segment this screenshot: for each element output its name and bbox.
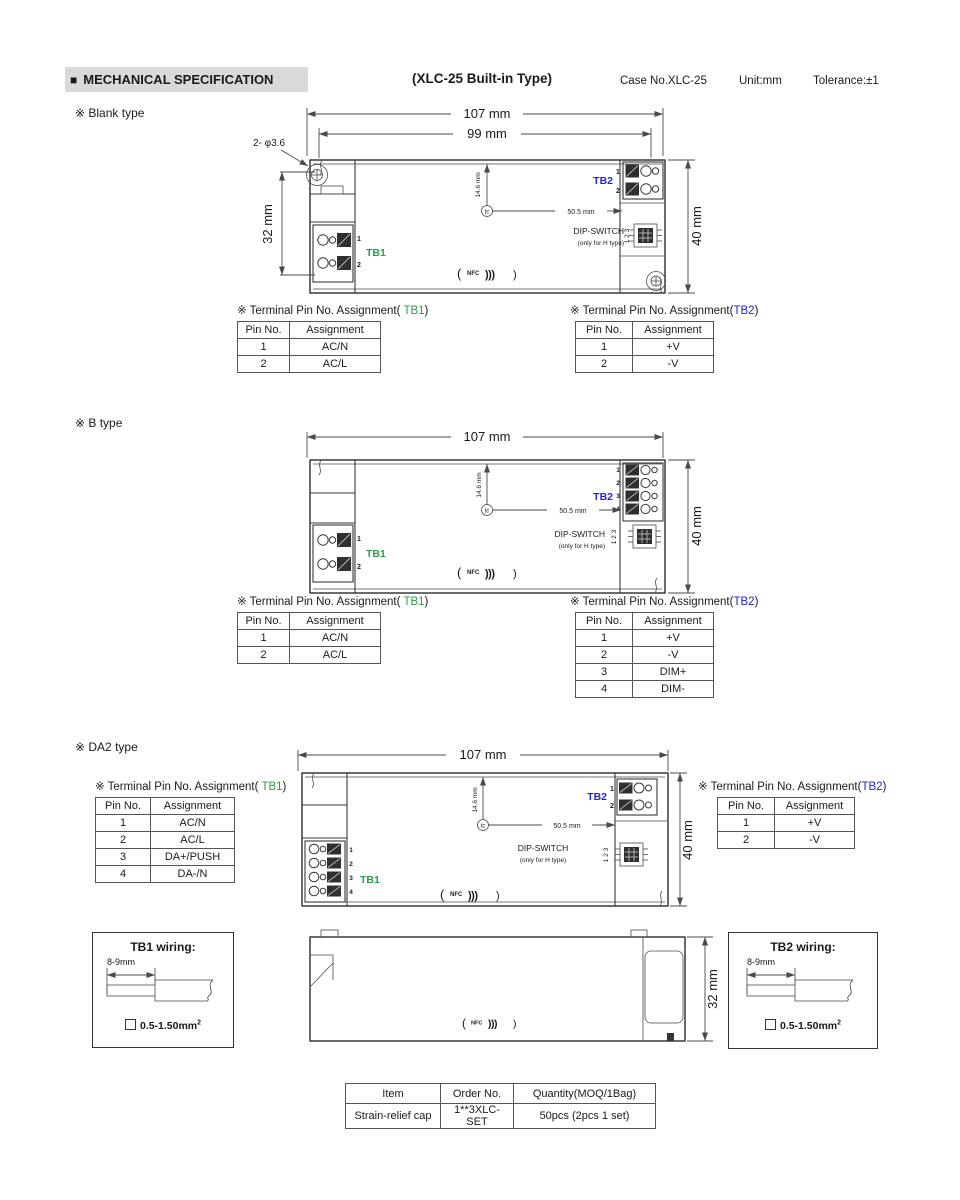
dimension-99: 99 mm — [319, 126, 651, 158]
page-title: MECHANICAL SPECIFICATION — [83, 72, 273, 87]
tb2-pin1-label: 1 — [610, 786, 614, 793]
table-row: Pin No.Assignment — [96, 798, 235, 815]
dimension-107: 107 mm — [307, 429, 663, 458]
table-cell: 4 — [576, 681, 633, 698]
tb2-pin2-label: 2 — [616, 188, 620, 195]
dim-32-label: 32 mm — [705, 969, 720, 1009]
nfc-text: NFC — [471, 1021, 482, 1027]
table-cell: 1 — [576, 339, 633, 356]
strain-relief-order-table: ItemOrder No.Quantity(MOQ/1Bag) Strain-r… — [345, 1083, 656, 1129]
dim-32-label: 32 mm — [260, 204, 275, 244]
dimension-107: 107 mm — [298, 747, 668, 771]
mounting-ear-bottom-right — [647, 272, 666, 294]
model-subtitle: (XLC-25 Built-in Type) — [412, 71, 552, 86]
tc-mark: 14.6 mm tc 50.5 mm — [476, 464, 621, 516]
table-cell: 3 — [576, 664, 633, 681]
table-cell: AC/L — [290, 647, 381, 664]
nfc-waves-icon: ))) — [488, 1018, 497, 1030]
tb1-pin2-label: 2 — [357, 262, 361, 269]
da2-tb2-table-group: ※ Terminal Pin No. Assignment(TB2) Pin N… — [698, 779, 886, 849]
table-cell: 50pcs (2pcs 1 set) — [514, 1104, 656, 1129]
table-cell: Assignment — [151, 798, 235, 815]
table-row: 2AC/L — [96, 832, 235, 849]
device-profile — [310, 930, 685, 1041]
b-type-label: ※ B type — [75, 416, 122, 430]
tc-mark: 14.6 mm tc 50.5 mm — [475, 164, 622, 217]
order-table-group: ItemOrder No.Quantity(MOQ/1Bag) Strain-r… — [345, 1083, 656, 1129]
tb2-wiring-title: TB2 wiring: — [729, 940, 877, 954]
table-cell: Assignment — [290, 322, 381, 339]
blank-tb2-table-group: ※ Terminal Pin No. Assignment(TB2) Pin N… — [570, 303, 758, 373]
table-cell: -V — [775, 832, 855, 849]
table-row: Pin No.Assignment — [238, 322, 381, 339]
checkbox-icon — [765, 1019, 776, 1030]
dim-505-label: 50.5 mm — [553, 823, 580, 830]
table-row: 1AC/N — [96, 815, 235, 832]
da2-tb1-table-group: ※ Terminal Pin No. Assignment( TB1) Pin … — [95, 779, 286, 883]
tb2-pin3-label: 3 — [616, 493, 620, 500]
table-row: Pin No.Assignment — [718, 798, 855, 815]
dim-107-label: 107 mm — [460, 747, 507, 762]
strip-length-label: 8-9mm — [107, 957, 135, 967]
nfc-text: NFC — [450, 892, 463, 898]
unit-note: Unit:mm — [739, 75, 782, 87]
nfc-logo: ( NFC ))) ) — [457, 565, 517, 580]
table-cell: Pin No. — [718, 798, 775, 815]
table-cell: +V — [775, 815, 855, 832]
dim-40-label: 40 mm — [689, 506, 704, 546]
tb1-terminal-block: 1 2 3 4 TB1 — [305, 841, 380, 902]
nfc-paren-open: ( — [440, 887, 445, 902]
table-cell: AC/N — [290, 630, 381, 647]
dip-pin-numbers: 1 2 3 — [611, 529, 618, 544]
tb1-pin2-label: 2 — [357, 564, 361, 571]
blank-type-drawing: 107 mm 99 mm 2- φ3.6 — [225, 98, 715, 313]
tb1-label: TB1 — [366, 548, 386, 560]
blank-tb2-table-title: ※ Terminal Pin No. Assignment(TB2) — [570, 303, 758, 317]
tb2-pin2-label: 2 — [616, 480, 620, 487]
b-tb1-pin-table: Pin No.Assignment 1AC/N2AC/L — [237, 612, 381, 664]
table-cell: DIM- — [633, 681, 714, 698]
b-tb2-table-title: ※ Terminal Pin No. Assignment(TB2) — [570, 594, 758, 608]
table-row: 2-V — [576, 647, 714, 664]
nfc-text: NFC — [467, 271, 480, 277]
table-cell: 2 — [96, 832, 151, 849]
nfc-paren-close: ) — [513, 269, 517, 281]
nfc-paren-open: ( — [457, 266, 462, 281]
table-cell: Item — [346, 1084, 441, 1104]
table-cell: 2 — [576, 647, 633, 664]
dip-switch-icon: DIP-SWITCH (only for H type) 1 2 3 — [554, 525, 661, 550]
blank-tb1-pin-table: Pin No.Assignment 1AC/N2AC/L — [237, 321, 381, 373]
table-row: 1AC/N — [238, 630, 381, 647]
nfc-waves-icon: ))) — [468, 890, 478, 902]
dim-146-label: 14.6 mm — [476, 472, 483, 497]
table-cell: +V — [633, 339, 714, 356]
tc-symbol: tc — [485, 210, 490, 216]
tb1-pin4-label: 4 — [349, 889, 353, 896]
da2-tb2-table-title: ※ Terminal Pin No. Assignment(TB2) — [698, 779, 886, 793]
checkbox-icon — [125, 1019, 136, 1030]
table-cell: Pin No. — [576, 613, 633, 630]
table-row: Pin No.Assignment — [576, 613, 714, 630]
section-header: ■ MECHANICAL SPECIFICATION — [65, 67, 308, 92]
tb2-pin2-label: 2 — [610, 803, 614, 810]
tc-symbol: tc — [485, 509, 490, 515]
table-cell: 1 — [718, 815, 775, 832]
dim-146-label: 14.6 mm — [472, 787, 479, 812]
b-type-drawing: 107 mm 1 2 TB1 — [225, 425, 715, 600]
dim-40-label: 40 mm — [689, 206, 704, 246]
tb1-terminal-block: 1 2 TB1 — [313, 225, 386, 282]
mounting-hole-callout: 2- φ3.6 — [253, 138, 308, 166]
dimension-40: 40 mm — [670, 773, 695, 906]
nfc-paren-open: ( — [462, 1016, 466, 1030]
tb2-pin1-label: 1 — [616, 169, 620, 176]
nfc-logo: ( NFC ))) ) — [440, 887, 500, 902]
table-cell: 1 — [238, 339, 290, 356]
hole-size-label: 2- φ3.6 — [253, 138, 285, 149]
strip-length-label: 8-9mm — [747, 957, 775, 967]
dim-40-label: 40 mm — [680, 820, 695, 860]
tc-symbol: tc — [481, 824, 486, 830]
table-cell: Pin No. — [238, 322, 290, 339]
tb1-pin1-label: 1 — [357, 236, 361, 243]
blank-tb2-pin-table: Pin No.Assignment 1+V2-V — [575, 321, 714, 373]
b-tb2-table-group: ※ Terminal Pin No. Assignment(TB2) Pin N… — [570, 594, 758, 698]
table-row: 1+V — [576, 630, 714, 647]
da2-type-label: ※ DA2 type — [75, 740, 138, 754]
table-cell: 3 — [96, 849, 151, 866]
table-cell: AC/L — [290, 356, 381, 373]
nfc-text: NFC — [467, 570, 480, 576]
table-cell: -V — [633, 647, 714, 664]
nfc-paren-close: ) — [513, 568, 517, 580]
table-cell: AC/N — [151, 815, 235, 832]
tc-mark: 14.6 mm tc 50.5 mm — [472, 777, 615, 831]
table-row: 1+V — [576, 339, 714, 356]
b-tb1-table-group: ※ Terminal Pin No. Assignment( TB1) Pin … — [237, 594, 428, 664]
table-cell: DIM+ — [633, 664, 714, 681]
tb1-wiring-box: TB1 wiring: 8-9mm 0.5-1.50mm2 — [92, 932, 234, 1048]
dip-pin-numbers: 1 2 3 — [603, 847, 610, 862]
case-number: Case No.XLC-25 — [620, 75, 707, 87]
tb2-terminal-block: TB2 1 2 — [593, 162, 663, 199]
tb1-pin2-label: 2 — [349, 861, 353, 868]
table-cell: Quantity(MOQ/1Bag) — [514, 1084, 656, 1104]
table-cell: 2 — [238, 356, 290, 373]
table-cell: 1 — [238, 630, 290, 647]
spec-sheet-page: ■ MECHANICAL SPECIFICATION (XLC-25 Built… — [0, 0, 960, 1200]
tb1-wiring-title: TB1 wiring: — [93, 940, 233, 954]
table-cell: 1 — [96, 815, 151, 832]
da2-tb1-pin-table: Pin No.Assignment 1AC/N2AC/L3DA+/PUSH4DA… — [95, 797, 235, 883]
table-cell: +V — [633, 630, 714, 647]
nfc-paren-open: ( — [457, 565, 462, 580]
blank-type-label: ※ Blank type — [75, 106, 144, 120]
table-cell: Pin No. — [96, 798, 151, 815]
dim-107-label: 107 mm — [464, 429, 511, 444]
table-cell: -V — [633, 356, 714, 373]
tb2-label: TB2 — [593, 175, 613, 187]
da2-type-drawing: 107 mm 1 2 3 4 TB — [290, 743, 702, 913]
dip-switch-icon: DIP-SWITCH (only for H type) 1 2 3 — [518, 843, 648, 866]
tb2-wiring-box: TB2 wiring: 8-9mm 0.5-1.50mm2 — [728, 932, 878, 1049]
table-row: Pin No.Assignment — [238, 613, 381, 630]
tb2-terminal-block: 1 2 TB2 — [587, 779, 657, 815]
tb2-pin4-label: 4 — [616, 506, 620, 513]
nfc-waves-icon: ))) — [485, 269, 495, 281]
table-row: 2AC/L — [238, 647, 381, 664]
tb1-label: TB1 — [360, 874, 380, 886]
table-cell: 1 — [576, 630, 633, 647]
table-cell: DA+/PUSH — [151, 849, 235, 866]
table-cell: Pin No. — [238, 613, 290, 630]
table-cell: Assignment — [633, 322, 714, 339]
wire-gauge-note: 0.5-1.50mm2 — [729, 1019, 877, 1032]
table-row: ItemOrder No.Quantity(MOQ/1Bag) — [346, 1084, 656, 1104]
nfc-waves-icon: ))) — [485, 568, 495, 580]
table-row: 2-V — [718, 832, 855, 849]
tb2-label: TB2 — [593, 491, 613, 503]
dip-switch-label: DIP-SWITCH — [573, 226, 624, 236]
table-row: Pin No.Assignment — [576, 322, 714, 339]
table-cell: 2 — [576, 356, 633, 373]
table-row: 4DA-/N — [96, 866, 235, 883]
da2-tb1-table-title: ※ Terminal Pin No. Assignment( TB1) — [95, 779, 286, 793]
table-row: 4DIM- — [576, 681, 714, 698]
tb1-terminal-block: 1 2 TB1 — [313, 525, 386, 582]
table-cell: Strain-relief cap — [346, 1104, 441, 1129]
wire-strip-diagram: 8-9mm — [739, 954, 867, 1012]
table-row: 3DA+/PUSH — [96, 849, 235, 866]
tb2-terminal-block: 1 2 3 4 TB2 — [593, 463, 663, 521]
tb1-pin1-label: 1 — [349, 847, 353, 854]
nfc-paren-close: ) — [496, 890, 500, 902]
tb1-pin3-label: 3 — [349, 875, 353, 882]
dip-switch-note: (only for H type) — [520, 857, 566, 864]
table-row: 2AC/L — [238, 356, 381, 373]
nfc-paren-close: ) — [513, 1018, 517, 1030]
table-cell: 2 — [238, 647, 290, 664]
table-cell: Assignment — [775, 798, 855, 815]
table-row: 1+V — [718, 815, 855, 832]
dip-switch-label: DIP-SWITCH — [518, 843, 569, 853]
table-cell: Pin No. — [576, 322, 633, 339]
tb2-label: TB2 — [587, 791, 607, 803]
table-cell: Assignment — [290, 613, 381, 630]
table-cell: AC/N — [290, 339, 381, 356]
dip-switch-label: DIP-SWITCH — [554, 529, 605, 539]
blank-tb1-table-title: ※ Terminal Pin No. Assignment( TB1) — [237, 303, 428, 317]
dimension-32: 32 mm — [687, 937, 720, 1041]
table-cell: AC/L — [151, 832, 235, 849]
da2-tb2-pin-table: Pin No.Assignment 1+V2-V — [717, 797, 855, 849]
nfc-logo: ( NFC ))) ) — [457, 266, 517, 281]
dimension-32: 32 mm — [260, 172, 315, 275]
table-cell: 2 — [718, 832, 775, 849]
tb2-pin1-label: 1 — [616, 467, 620, 474]
wire-strip-diagram: 8-9mm — [99, 954, 227, 1012]
dip-switch-note: (only for H type) — [559, 543, 605, 550]
dim-505-label: 50.5 mm — [567, 209, 594, 216]
square-bullet-icon: ■ — [70, 73, 77, 87]
dim-107-label: 107 mm — [464, 106, 511, 121]
dimension-40: 40 mm — [668, 160, 704, 293]
dip-switch-icon: DIP-SWITCH (only for H type) 1 2 3 — [573, 224, 662, 247]
blank-tb1-table-group: ※ Terminal Pin No. Assignment( TB1) Pin … — [237, 303, 428, 373]
tb1-pin1-label: 1 — [357, 536, 361, 543]
nfc-logo: ( NFC ))) ) — [462, 1016, 517, 1030]
table-cell: 1**3XLC-SET — [441, 1104, 514, 1129]
tolerance-note: Tolerance:±1 — [813, 75, 879, 87]
wire-gauge-note: 0.5-1.50mm2 — [93, 1019, 233, 1032]
dimension-40: 40 mm — [668, 460, 704, 593]
table-row: Strain-relief cap1**3XLC-SET50pcs (2pcs … — [346, 1104, 656, 1129]
table-cell: DA-/N — [151, 866, 235, 883]
table-row: 2-V — [576, 356, 714, 373]
side-view-drawing: ( NFC ))) ) 32 mm — [295, 925, 725, 1050]
table-row: 3DIM+ — [576, 664, 714, 681]
b-tb1-table-title: ※ Terminal Pin No. Assignment( TB1) — [237, 594, 428, 608]
table-cell: Order No. — [441, 1084, 514, 1104]
dim-146-label: 14.6 mm — [475, 172, 482, 197]
dim-505-label: 50.5 mm — [559, 508, 586, 515]
dim-99-label: 99 mm — [467, 126, 507, 141]
table-row: 1AC/N — [238, 339, 381, 356]
table-cell: Assignment — [633, 613, 714, 630]
table-cell: 4 — [96, 866, 151, 883]
b-tb2-pin-table: Pin No.Assignment 1+V2-V3DIM+4DIM- — [575, 612, 714, 698]
dip-switch-note: (only for H type) — [578, 240, 624, 247]
tb1-label: TB1 — [366, 247, 386, 259]
